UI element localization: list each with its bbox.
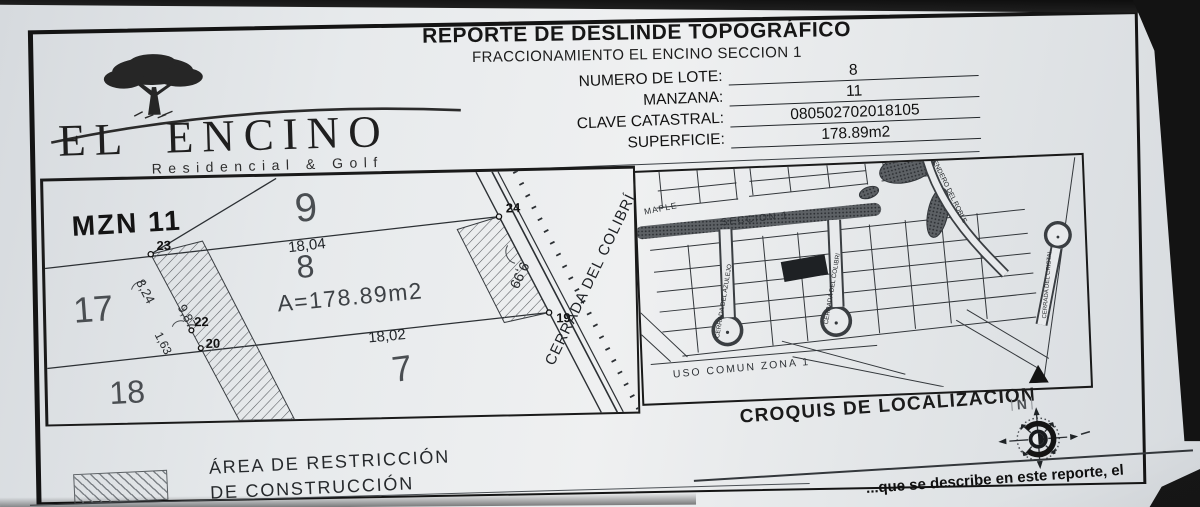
lot-number-7: 7 bbox=[389, 347, 414, 390]
point-20: 20 bbox=[206, 336, 221, 351]
lot-info-form: NUMERO DE LOTE: 8 MANZANA: 11 CLAVE CATA… bbox=[530, 55, 981, 169]
street-label-maple: MAPLE bbox=[643, 200, 678, 216]
dimension-bottom: 18,02 bbox=[368, 326, 407, 346]
block-label: MZN 11 bbox=[71, 205, 183, 242]
zone-label-uso-comun: USO COMUN ZONA 1 bbox=[672, 356, 810, 381]
point-22: 22 bbox=[194, 314, 209, 329]
dimension-left-lower: 1,63 bbox=[152, 330, 175, 357]
paper-sheet: REPORTE DE DESLINDE TOPOGRÁFICO FRACCION… bbox=[0, 0, 1200, 507]
location-map-drawing: MAPLE SECCION 1 CERRADA DEL AZULEJO CERR… bbox=[635, 155, 1086, 399]
restriction-strip-east bbox=[457, 216, 549, 324]
dimension-left-upper: 8,24 bbox=[133, 277, 158, 306]
north-label: N bbox=[1016, 396, 1027, 413]
restriction-strip-west bbox=[150, 239, 294, 422]
point-23: 23 bbox=[156, 238, 171, 253]
lot-plan-drawing: MZN 11 9 17 18 8 7 A=178.89m2 18,04 18,0… bbox=[43, 169, 638, 425]
point-24: 24 bbox=[506, 200, 522, 215]
location-map-box: MAPLE SECCION 1 CERRADA DEL AZULEJO CERR… bbox=[633, 153, 1093, 406]
field-label-superficie: SUPERFICIE: bbox=[533, 131, 732, 157]
el-encino-logo: EL ENCINO Residencial & Golf bbox=[45, 54, 477, 176]
lot-number-17: 17 bbox=[72, 287, 115, 331]
lot-plan-box: MZN 11 9 17 18 8 7 A=178.89m2 18,04 18,0… bbox=[40, 166, 640, 427]
photographed-document: REPORTE DE DESLINDE TOPOGRÁFICO FRACCION… bbox=[0, 0, 1200, 507]
lot-number-18: 18 bbox=[108, 373, 146, 411]
dimension-top: 18,04 bbox=[287, 235, 326, 256]
lot-number-9: 9 bbox=[293, 185, 319, 231]
street-name-cerrada-del-colibri: CERRADA DEL COLIBRÍ bbox=[542, 191, 639, 368]
